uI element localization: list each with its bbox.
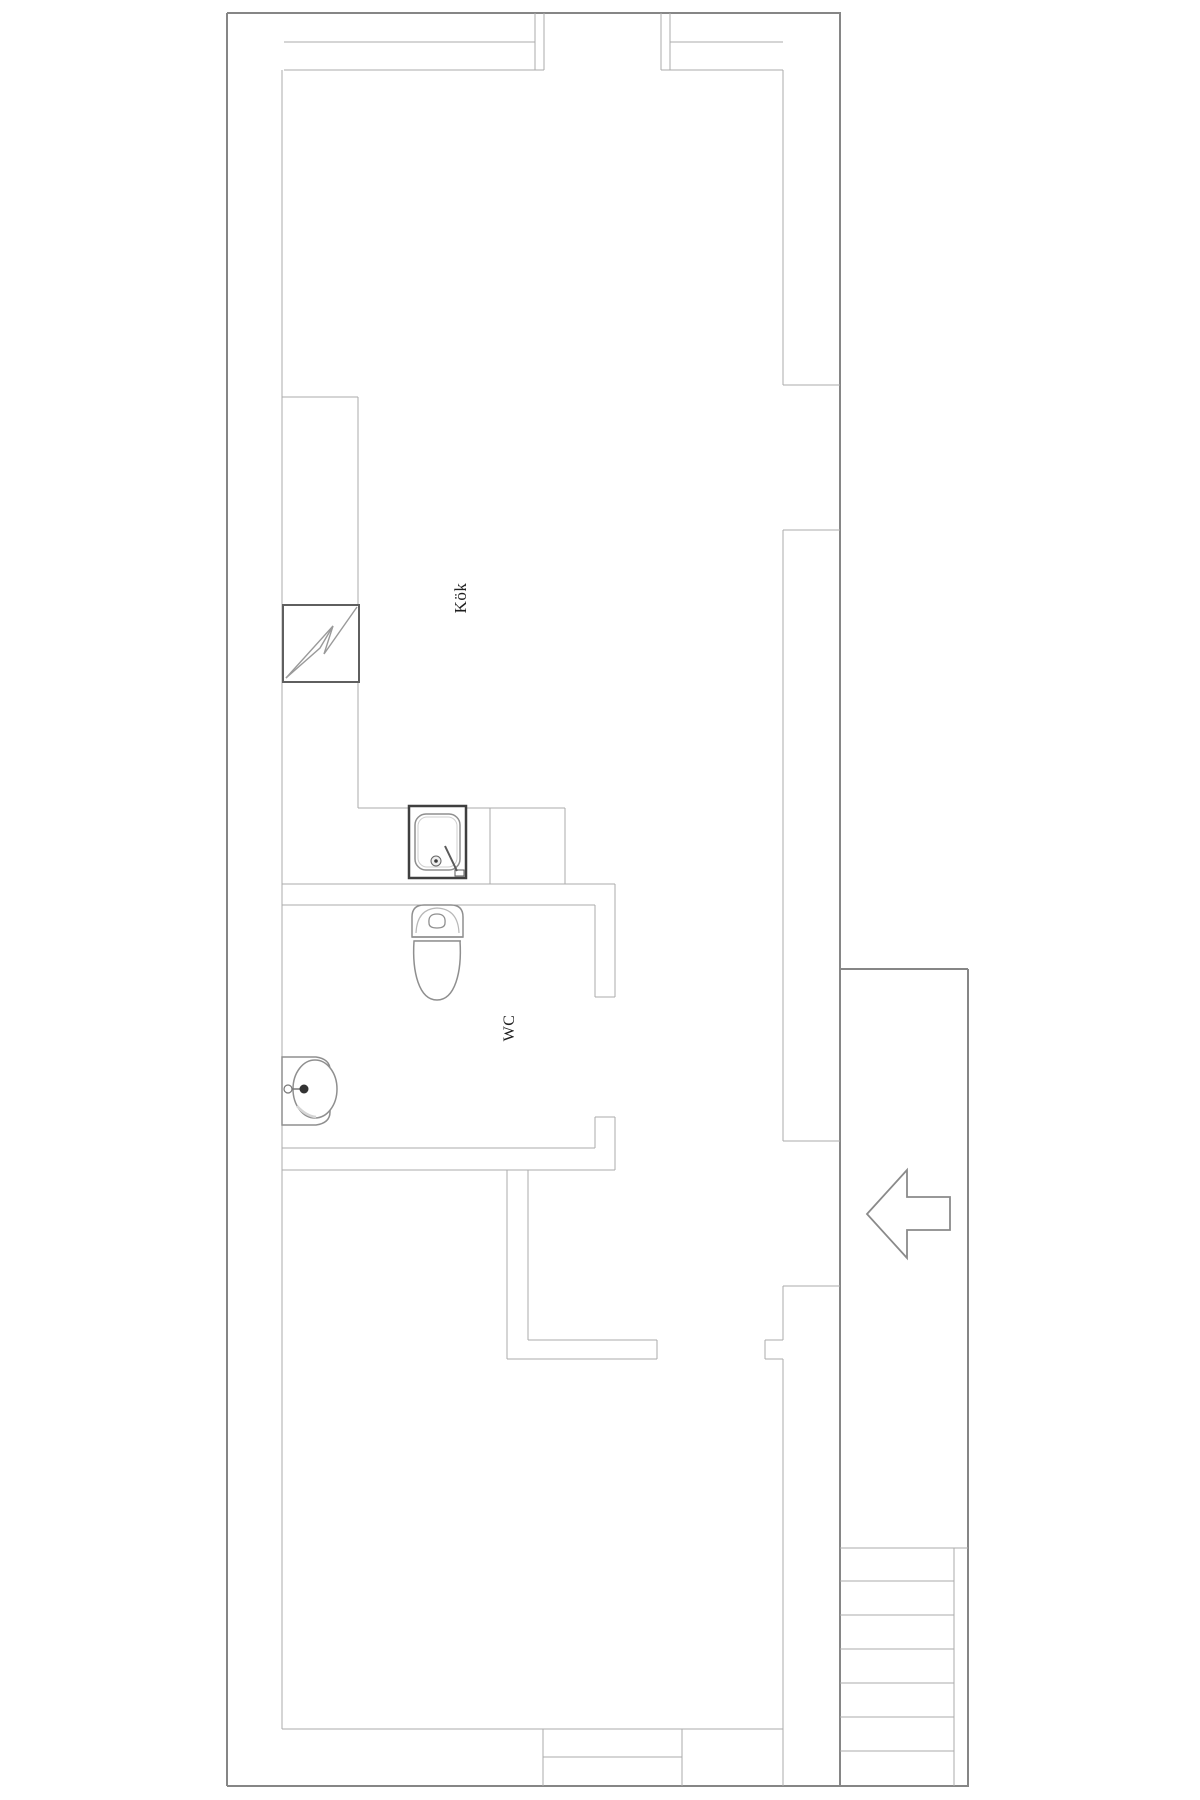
toilet-icon-shape <box>429 914 445 928</box>
stove-icon <box>283 605 359 682</box>
stove-icon-shape <box>286 607 357 678</box>
toilet-icon-shape <box>414 941 461 1000</box>
entrance-arrow-icon-shape <box>867 1170 950 1258</box>
entrance-arrow-icon <box>867 1170 950 1258</box>
staircase <box>840 1548 968 1751</box>
toilet-icon <box>412 905 463 1000</box>
room-label-wc: WC <box>501 1015 519 1042</box>
kitchen-sink-icon <box>409 806 466 878</box>
washbasin-icon-shape <box>284 1085 292 1093</box>
room-label-kok: Kök <box>451 583 471 614</box>
washbasin-icon <box>282 1057 337 1125</box>
washbasin-icon-shape <box>300 1085 309 1094</box>
floor-plan-drawing <box>0 0 1200 1800</box>
kitchen-sink-icon-shape <box>434 859 438 863</box>
floor-plan: Kök WC <box>0 0 1200 1800</box>
